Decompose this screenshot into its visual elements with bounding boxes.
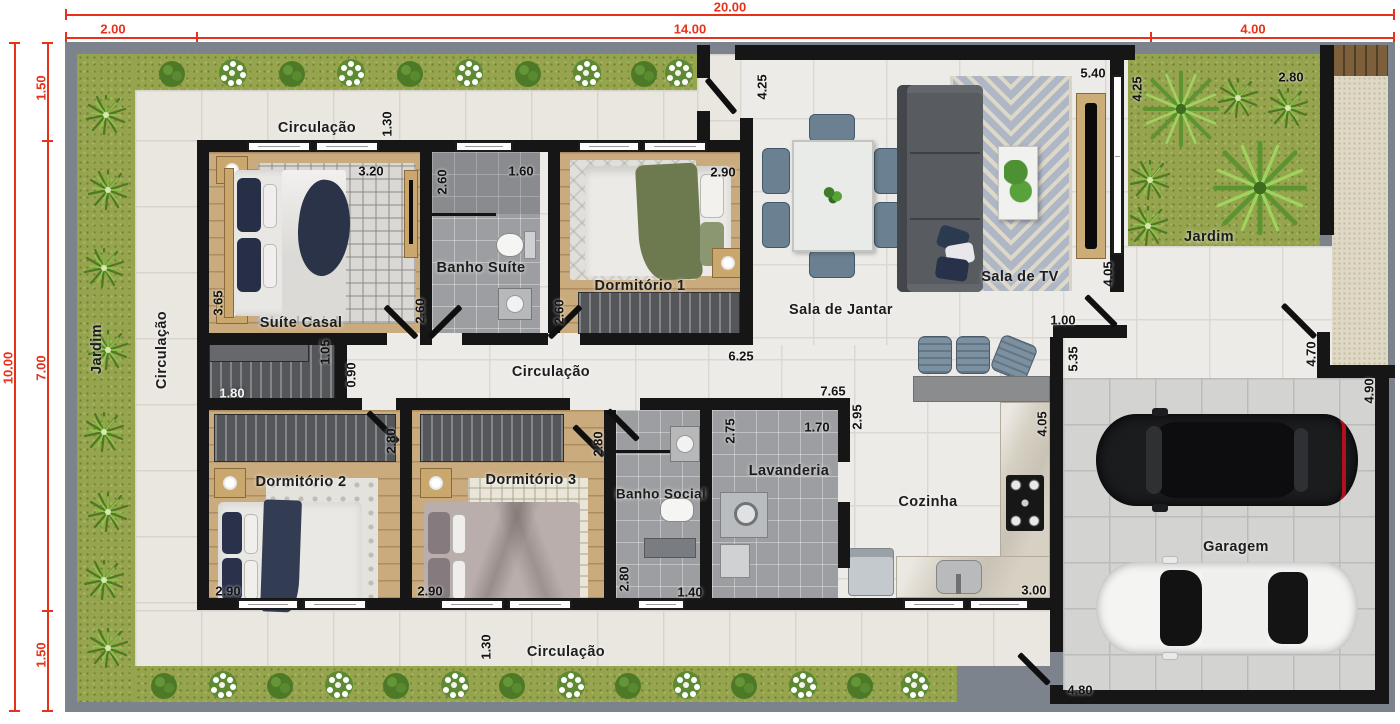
- label-dormitorio1: Dormitório 1: [595, 278, 686, 294]
- measure-cozinha-front: 7.65: [820, 384, 845, 399]
- bush-white: [664, 58, 694, 88]
- car-black-mirror-top: [1152, 408, 1168, 416]
- palm-tree: [1142, 70, 1220, 148]
- label-cozinha: Cozinha: [898, 494, 957, 510]
- spiky-plant: [88, 492, 128, 532]
- car-black-taillight: [1338, 420, 1346, 500]
- measure-tv-depth: 4.05: [1101, 261, 1116, 286]
- bush-green: [382, 672, 410, 700]
- measure-cozinha-width: 3.00: [1021, 583, 1046, 598]
- measure-jantar-width: 6.25: [728, 349, 753, 364]
- bush-white: [572, 58, 602, 88]
- bush-green: [266, 672, 294, 700]
- label-suite-casal: Suíte Casal: [260, 315, 343, 331]
- car-white-mirror-bottom: [1162, 652, 1178, 660]
- car-white-roof: [1202, 572, 1268, 644]
- car-white-windshield: [1160, 570, 1202, 646]
- coffee-table-plants: [1004, 160, 1032, 208]
- shower-line-banho-suite: [432, 213, 496, 216]
- sink-bowl-banho-suite: [506, 295, 524, 313]
- bush-green: [514, 60, 542, 88]
- car-black-mirror-bottom: [1152, 504, 1168, 512]
- dim-total-width: 20.00: [714, 0, 747, 15]
- measure-jantar-wall: 4.25: [755, 74, 770, 99]
- measure-circ-bottom: 1.30: [479, 634, 494, 659]
- floor-plan: 20.00 2.00 14.00 4.00 10.00 1.50 7.00 1.…: [0, 0, 1400, 724]
- tv-screen: [1085, 103, 1097, 249]
- spiky-plant: [84, 412, 124, 452]
- toilet-banho-suite: [496, 233, 524, 257]
- wall-living-west: [740, 118, 753, 345]
- dining-table-plant: [820, 182, 846, 208]
- bed-dorm3-pillow-1: [428, 512, 450, 554]
- label-dormitorio2: Dormitório 2: [256, 474, 347, 490]
- bed-dorm3-pillow-4: [452, 560, 466, 600]
- bush-white: [788, 670, 818, 700]
- sofa-pillow-navy-2: [935, 256, 970, 282]
- dim-tick: [42, 140, 53, 142]
- measure-lavanderia-depth: 2.75: [723, 418, 738, 443]
- measure-jardim-width: 2.80: [1278, 70, 1303, 85]
- window-suite-1: [247, 141, 311, 152]
- bed-dorm2-pillow-4: [244, 560, 258, 600]
- sink-bowl-banho-social: [676, 435, 694, 453]
- laundry-top-washer: [848, 548, 894, 596]
- window-cozinha-1: [903, 599, 965, 610]
- spiky-plant: [84, 248, 124, 288]
- palm-tree: [1212, 140, 1308, 236]
- toilet-banho-social: [660, 498, 694, 522]
- dim-tick: [42, 42, 53, 44]
- bed-dorm1-pillow-1: [700, 174, 724, 218]
- wall-row2-north: [640, 398, 850, 410]
- label-sala-de-jantar: Sala de Jantar: [789, 302, 893, 318]
- measure-cozinha-depth: 2.95: [850, 404, 865, 429]
- kitchen-sink-faucet: [956, 574, 961, 594]
- measure-closet-pass: 1.05: [318, 339, 333, 364]
- window-cozinha-2: [969, 599, 1029, 610]
- sofa-cushion-line-2: [910, 218, 980, 220]
- bush-white: [324, 670, 354, 700]
- spiky-plant: [1218, 78, 1260, 120]
- wall-lavanderia-east-top: [838, 398, 850, 462]
- car-black-cabin: [1150, 422, 1300, 498]
- wall-garage-east: [1375, 378, 1389, 698]
- wall-dorm2-dorm3: [400, 410, 412, 598]
- measure-garage-width: 4.80: [1067, 683, 1092, 698]
- dim-line-top-segments: [65, 37, 1395, 39]
- chair-dining-left-2: [762, 202, 790, 248]
- window-dorm2-2: [303, 599, 367, 610]
- measure-hall-width: 0.90: [344, 362, 359, 387]
- measure-lavanderia-width: 1.70: [804, 420, 829, 435]
- wall-garage-west: [1050, 337, 1063, 652]
- bed-suite-headboard: [224, 168, 234, 318]
- sofa-cushion-line-1: [910, 152, 980, 154]
- measure-dorm3-depth: 2.80: [591, 431, 606, 456]
- measure-cozinha-side: 4.05: [1035, 411, 1050, 436]
- measure-kitchen-side: 5.35: [1066, 346, 1081, 371]
- shower-bench-banho-social: [644, 538, 696, 558]
- tv-suite: [409, 180, 413, 244]
- car-white-mirror-top: [1162, 556, 1178, 564]
- window-dorm3-1: [440, 599, 504, 610]
- laundry-sink: [720, 544, 750, 578]
- bed-dorm3-pillow-3: [452, 514, 466, 554]
- car-black-windshield: [1146, 426, 1162, 494]
- wall-west: [197, 140, 209, 610]
- dim-tick: [1393, 9, 1395, 20]
- bush-green: [396, 60, 424, 88]
- chair-dining-left-1: [762, 148, 790, 194]
- dim-seg-150-bottom: 1.50: [34, 642, 49, 667]
- wall-dorm3-banho: [604, 410, 616, 598]
- window-suite-2: [315, 141, 379, 152]
- measure-suite-width: 3.20: [358, 164, 383, 179]
- bed-dorm2-pillow-3: [244, 514, 258, 554]
- wall-lavanderia-east-bottom: [838, 502, 850, 568]
- label-dormitorio3: Dormitório 3: [486, 472, 577, 488]
- dim-tick: [9, 710, 20, 712]
- wall-walkway-end-h: [1330, 365, 1395, 378]
- bush-white: [454, 58, 484, 88]
- measure-dorm2-depth: 2.80: [384, 428, 399, 453]
- chair-dining-bottom: [809, 250, 855, 278]
- dim-seg-2: 2.00: [100, 22, 125, 37]
- bush-green: [278, 60, 306, 88]
- label-lavanderia: Lavanderia: [749, 463, 830, 479]
- measure-banho-suite-width: 1.60: [508, 164, 533, 179]
- measure-banho-suite-depth: 2.60: [435, 169, 450, 194]
- window-banho-social: [637, 599, 685, 610]
- dim-seg-150-top: 1.50: [34, 75, 49, 100]
- bush-green: [630, 60, 658, 88]
- measure-dorm3-width: 2.90: [417, 584, 442, 599]
- window-dorm2-1: [237, 599, 299, 610]
- wall-entrance-top: [697, 45, 710, 78]
- bush-white: [556, 670, 586, 700]
- bed-suite-pillow-4: [263, 244, 277, 288]
- wall-row2-north: [396, 398, 570, 410]
- bush-green: [730, 672, 758, 700]
- toilet-tank-banho-suite: [524, 231, 536, 259]
- dim-tick: [42, 610, 53, 612]
- measure-tv-width: 5.40: [1080, 66, 1105, 81]
- spiky-plant: [88, 170, 128, 210]
- bush-green: [158, 60, 186, 88]
- bed-dorm2-runner: [260, 499, 302, 612]
- bush-white: [336, 58, 366, 88]
- label-jardim-left: Jardim: [89, 324, 105, 374]
- measure-banho-social-width: 1.40: [677, 585, 702, 600]
- bed-dorm1-blanket: [635, 162, 703, 281]
- kitchen-bar-counter: [913, 376, 1050, 402]
- wall-garage-south: [1050, 690, 1389, 704]
- label-jardim-right: Jardim: [1184, 229, 1234, 245]
- chair-dining-top: [809, 114, 855, 142]
- bush-green: [498, 672, 526, 700]
- bush-green: [614, 672, 642, 700]
- path-top: [135, 90, 740, 140]
- label-circulacao-left: Circulação: [154, 311, 170, 389]
- measure-dorm1-width: 2.90: [710, 165, 735, 180]
- dim-seg-700: 7.00: [34, 355, 49, 380]
- bed-suite-pillow-1: [237, 178, 261, 232]
- bar-stool-1: [918, 336, 952, 374]
- wall-living-north: [735, 45, 1135, 60]
- wall-row1-south: [580, 333, 753, 345]
- spiky-plant: [1268, 88, 1308, 128]
- wall-entrance-bottom: [697, 111, 710, 143]
- label-sala-de-tv: Sala de TV: [981, 269, 1058, 285]
- bush-green: [150, 672, 178, 700]
- car-white-rear-window: [1268, 572, 1308, 644]
- bush-white: [672, 670, 702, 700]
- entry-pergola-deck: [1332, 45, 1388, 76]
- bed-suite-pillow-2: [237, 238, 261, 292]
- window-banho-suite: [455, 141, 513, 152]
- bush-white: [900, 670, 930, 700]
- car-black-rear-window: [1294, 428, 1308, 492]
- dim-tick: [65, 9, 67, 20]
- measure-banho-social-depth: 2.80: [617, 566, 632, 591]
- bush-white: [208, 670, 238, 700]
- wardrobe-dorm3: [420, 414, 564, 462]
- window-tv-sliding-door: [1112, 75, 1123, 255]
- dim-seg-4: 4.00: [1240, 22, 1265, 37]
- measure-tv-pass: 1.00: [1050, 313, 1075, 328]
- label-circulacao-bottom: Circulação: [527, 644, 605, 660]
- bar-stool-2: [956, 336, 990, 374]
- measure-closet-width: 1.80: [219, 386, 244, 401]
- wall-jardim-east: [1320, 45, 1334, 235]
- entry-walkway: [1332, 76, 1388, 365]
- wall-walkway-end-v: [1317, 332, 1330, 378]
- washing-machine-door: [734, 502, 758, 526]
- nightstand-dorm2: [214, 468, 246, 498]
- label-garagem: Garagem: [1203, 539, 1269, 555]
- dim-total-height: 10.00: [1, 352, 16, 385]
- measure-dorm1-door: 2.60: [552, 299, 567, 324]
- wall-row1-south: [197, 333, 387, 345]
- spiky-plant: [86, 95, 126, 135]
- window-dorm3-2: [508, 599, 572, 610]
- bed-suite-pillow-3: [263, 184, 277, 228]
- bush-white: [440, 670, 470, 700]
- garden-bottom-strip: [135, 666, 957, 702]
- bush-white: [218, 58, 248, 88]
- dim-seg-14: 14.00: [674, 22, 707, 37]
- measure-suite-door: 2.60: [413, 298, 428, 323]
- measure-garage-depth: 4.90: [1362, 378, 1377, 403]
- dim-tick: [9, 42, 20, 44]
- wardrobe-dorm2: [214, 414, 396, 462]
- measure-walkway-depth: 4.70: [1304, 341, 1319, 366]
- measure-dorm2-width: 2.90: [215, 584, 240, 599]
- measure-circ-top: 1.30: [380, 111, 395, 136]
- spiky-plant: [88, 628, 128, 668]
- spiky-plant: [84, 560, 124, 600]
- wall-banho-lavanderia: [700, 410, 712, 598]
- window-dorm1-2: [643, 141, 707, 152]
- bush-green: [846, 672, 874, 700]
- label-circulacao-middle: Circulação: [512, 364, 590, 380]
- measure-jardim-depth: 4.25: [1130, 76, 1145, 101]
- measure-suite-depth: 3.65: [211, 290, 226, 315]
- label-banho-suite: Banho Suíte: [437, 260, 526, 276]
- wall-row1-south: [462, 333, 548, 345]
- label-banho-social: Banho Social: [616, 487, 706, 502]
- window-dorm1-1: [578, 141, 640, 152]
- wardrobe-dorm1: [578, 292, 740, 334]
- label-circulacao-top: Circulação: [278, 120, 356, 136]
- path-left: [135, 140, 197, 666]
- dim-tick: [42, 710, 53, 712]
- stove: [1006, 475, 1044, 531]
- garden-left-strip: [77, 54, 135, 702]
- nightstand-dorm3: [420, 468, 452, 498]
- spiky-plant: [1130, 160, 1170, 200]
- spiky-plant: [1128, 206, 1168, 246]
- bed-dorm2-pillow-1: [222, 512, 242, 554]
